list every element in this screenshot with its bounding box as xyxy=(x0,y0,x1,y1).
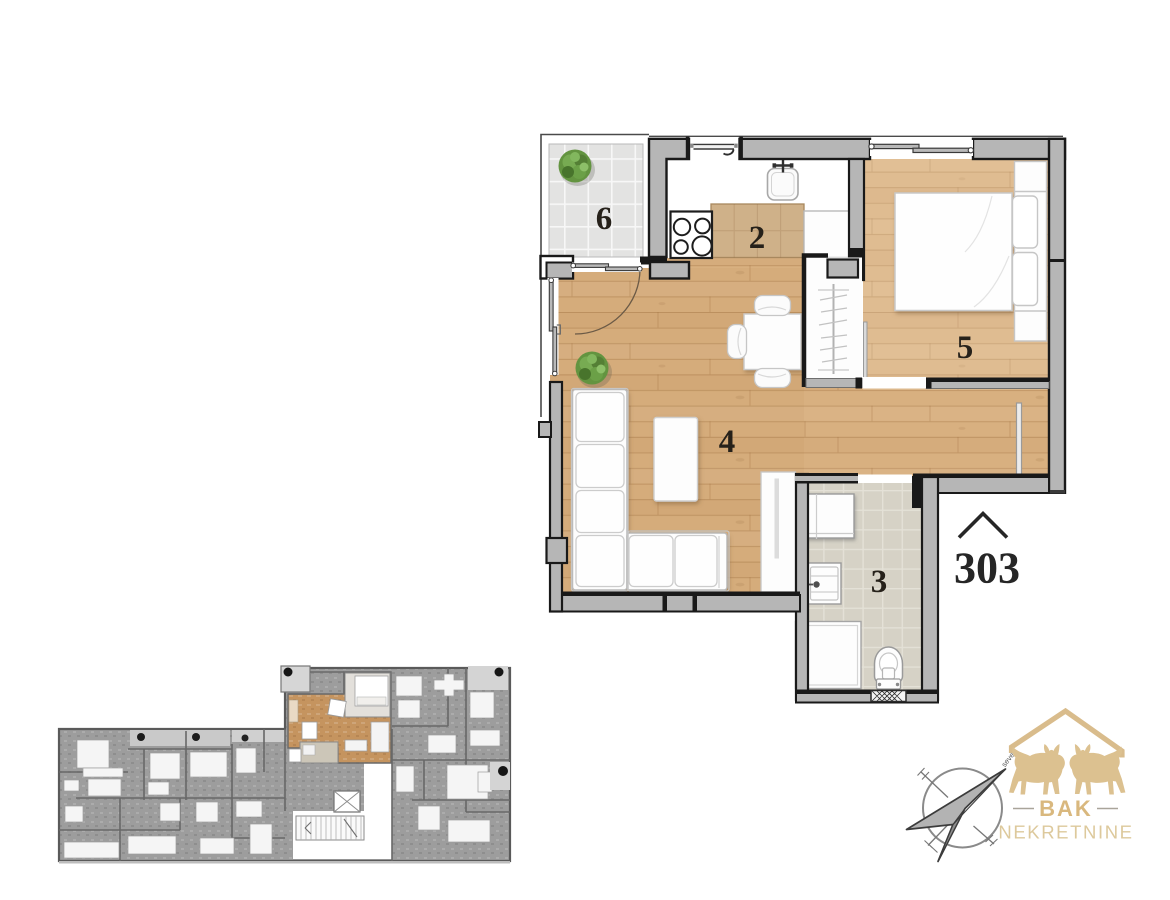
svg-text:6: 6 xyxy=(596,201,613,237)
svg-text:BAK: BAK xyxy=(1039,796,1093,821)
svg-text:2: 2 xyxy=(749,220,766,256)
svg-text:NEKRETNINE: NEKRETNINE xyxy=(998,822,1133,843)
svg-text:4: 4 xyxy=(719,424,736,460)
svg-text:3: 3 xyxy=(871,564,888,600)
svg-text:5: 5 xyxy=(957,330,974,366)
svg-text:303: 303 xyxy=(954,544,1020,593)
